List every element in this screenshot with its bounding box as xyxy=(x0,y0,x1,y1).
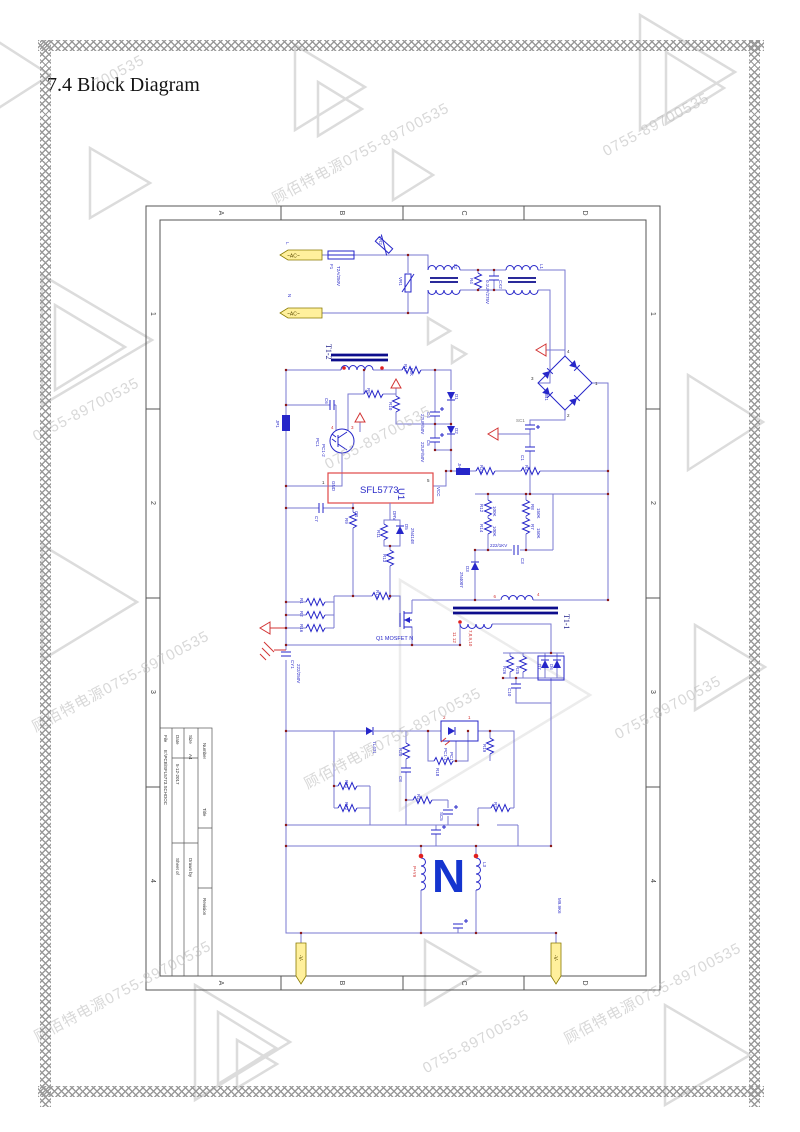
tb-revision-label: Revision xyxy=(202,898,207,916)
label-r15: R15 xyxy=(375,590,380,599)
label-cx2: CX2 xyxy=(498,280,503,289)
resistor-r8 xyxy=(523,500,530,516)
label-pin1: 1 xyxy=(322,480,325,485)
label-q1: Q1 MOSFET N xyxy=(376,636,413,642)
shunt-tl431 xyxy=(366,727,373,735)
label-r11: R11 xyxy=(376,530,381,538)
resistor-r2 xyxy=(306,612,325,619)
label-op3: 3 xyxy=(351,425,354,430)
label-r8v: 150K xyxy=(536,508,541,519)
schematic-sheet: A B C D A B C D 1 2 3 4 1 2 3 4 File E:\… xyxy=(138,198,668,1003)
label-pc1-2: PC1-2 xyxy=(321,444,326,457)
label-d6: D6 xyxy=(549,664,554,670)
cap-c1 xyxy=(525,447,535,451)
resistor-r16 xyxy=(306,625,325,632)
label-bp2: 2 xyxy=(567,413,570,418)
frame-row-3: 3 xyxy=(149,690,156,694)
resistor-r12 xyxy=(485,500,492,516)
label-sec2: 7,8,9,10 xyxy=(468,630,473,647)
frame-row-1: 1 xyxy=(149,312,156,316)
label-pc1: PC1 xyxy=(315,438,320,447)
page: { "page": {"title": "7.4 Block Diagram"}… xyxy=(0,0,800,1132)
tb-title-label: Title xyxy=(202,808,207,817)
label-c6: C6 xyxy=(324,398,329,404)
label-pc1b: PC1 xyxy=(449,752,454,761)
label-c5v: 22UF/50V xyxy=(420,442,425,462)
label-l1: L1 xyxy=(539,264,544,270)
label-r8: R8 xyxy=(530,504,535,510)
label-net1: M9.9K6 xyxy=(557,898,562,914)
tb-date-label: Date xyxy=(175,735,180,745)
label-bp3: 3 xyxy=(531,376,534,381)
label-r17v: 56K xyxy=(409,368,414,376)
label-c5: C5 xyxy=(426,440,431,446)
label-vr1: VR1 xyxy=(398,277,403,286)
label-cy1v: 222/250V xyxy=(296,664,301,683)
label-jh1: JH1 xyxy=(457,463,462,471)
label-pin5: 5 xyxy=(427,478,430,483)
frame-col-a: A xyxy=(217,211,224,216)
label-r13: R13 xyxy=(382,554,387,563)
jumper-jp1 xyxy=(282,415,290,431)
label-c8: C8 xyxy=(398,776,403,782)
diode-d3 xyxy=(471,562,479,570)
tb-size: A4 xyxy=(188,754,193,760)
diode-d5 xyxy=(396,526,404,534)
label-t1-1: T1-1 xyxy=(562,614,571,630)
label-vcc: VCC xyxy=(436,487,441,497)
polarity-marks xyxy=(440,407,444,437)
label-c7: C7 xyxy=(314,516,319,522)
frame-row-3r: 3 xyxy=(649,690,656,694)
label-op2: 2 xyxy=(443,715,446,720)
label-r9: R9 xyxy=(344,518,349,524)
label-d7: D7 xyxy=(537,664,542,670)
frame-row-1r: 1 xyxy=(649,312,656,316)
cap-c3 xyxy=(514,545,518,555)
label-cy1: CY1 xyxy=(290,660,295,669)
label-cx2v: 0.1UF/275V xyxy=(485,280,490,304)
label-r12: R12 xyxy=(479,504,484,513)
tb-sheet-label: Sheet of xyxy=(175,858,180,876)
label-tp6: 6 xyxy=(493,594,496,599)
label-sc1: SC1 xyxy=(516,418,525,423)
watermark-text: 0755-89700535 xyxy=(600,90,712,160)
cap-output-1 xyxy=(431,830,441,834)
watermark-text: 0755-89700535 xyxy=(30,375,142,445)
frame-col-c: C xyxy=(460,210,467,215)
label-r4: R4 xyxy=(469,278,474,284)
tb-number-label: Number xyxy=(202,743,207,760)
frame-col-b: B xyxy=(338,211,345,216)
label-r17: R17 xyxy=(403,364,408,373)
label-r16: R16 xyxy=(299,624,304,633)
label-r26: R26 xyxy=(502,666,507,675)
page-title: 7.4 Block Diagram xyxy=(47,74,200,97)
label-u1-name: SFL5773 xyxy=(360,485,399,496)
label-r7: R7 xyxy=(530,524,535,530)
label-d1: D1 xyxy=(454,394,459,400)
label-cs: CS xyxy=(354,511,359,517)
label-r20: R20 xyxy=(398,748,403,757)
resistor-r7 xyxy=(523,518,530,534)
label-r12v: 100K xyxy=(492,506,497,517)
label-drv: DRV xyxy=(392,511,397,520)
label-gnd: GND xyxy=(331,481,336,492)
title-block: File E:\PCB\SFL5773.SCHDOC Date 5-12-201… xyxy=(160,728,212,976)
label-ac2: ~AC~ xyxy=(287,312,300,318)
label-d3: D3 xyxy=(465,566,470,572)
label-sec1: 11 12 xyxy=(452,632,457,643)
frame-col-d: D xyxy=(581,210,588,215)
label-r1: R1 xyxy=(299,598,304,604)
polarity-marks-2 xyxy=(442,425,540,923)
label-vneg-right: -V- xyxy=(552,955,558,962)
frame-row-4: 4 xyxy=(149,879,156,883)
border-right xyxy=(749,40,760,1107)
frame-col-b2: B xyxy=(338,981,345,986)
frame-col-d2: D xyxy=(581,980,588,985)
cap-c7 xyxy=(319,503,323,513)
border-top xyxy=(38,40,764,51)
vout-connector-left xyxy=(296,943,306,984)
tb-file: E:\PCB\SFL5773.SCHDOC xyxy=(163,750,168,806)
resistor-r24 xyxy=(476,468,495,475)
label-r27: R27 xyxy=(493,802,498,811)
border-bottom xyxy=(38,1086,764,1097)
tb-file-label: File xyxy=(163,735,168,743)
cap-c6 xyxy=(330,400,334,410)
label-sc5: SC5 xyxy=(439,812,444,821)
cap-sc1 xyxy=(525,425,535,429)
tb-drawn-label: Drawn by xyxy=(188,858,193,878)
label-r24: R24 xyxy=(479,465,484,474)
label-r18: R18 xyxy=(435,768,440,777)
label-logo-n: N xyxy=(432,850,465,902)
border-left xyxy=(40,40,51,1107)
tb-size-label: Size xyxy=(188,735,193,744)
tb-date: 5-12-2017 xyxy=(175,764,180,785)
label-tl431: TL431 xyxy=(372,741,377,754)
frame-col-c2: C xyxy=(460,980,467,985)
frame-col-a2: A xyxy=(217,981,224,986)
label-jp1: JP1 xyxy=(275,420,280,428)
label-d2: D2 xyxy=(454,428,459,434)
resistor-r23 xyxy=(413,797,432,804)
components xyxy=(260,235,592,984)
resistor-r4 xyxy=(475,273,482,289)
label-bp4: 4 xyxy=(567,349,570,354)
label-r14: R14 xyxy=(479,524,484,533)
label-r2: R2 xyxy=(299,611,304,617)
label-r5: R5 xyxy=(366,388,371,394)
diode-d1 xyxy=(447,392,455,400)
varistor-vr2 xyxy=(373,235,394,256)
label-c3: C3 xyxy=(520,558,525,564)
label-r7v: 150K xyxy=(536,528,541,539)
label-t1-2: T1-2 xyxy=(324,344,333,360)
transformer-t1-2 xyxy=(331,355,388,370)
choke-l1 xyxy=(506,266,538,295)
label-r14v: 100K xyxy=(492,526,497,537)
inductor-l3 xyxy=(476,858,481,890)
label-r19: R19 xyxy=(482,744,487,753)
label-vneg-left: -V- xyxy=(297,955,303,962)
label-r22: R22 xyxy=(344,802,349,811)
inductor-output-left xyxy=(421,858,426,890)
label-pc1-1: PC1-1 xyxy=(443,748,448,761)
label-u1: U1 xyxy=(395,488,406,500)
fuse-f1 xyxy=(328,251,354,259)
label-r3: R3 xyxy=(524,465,529,471)
label-d5: D5 xyxy=(404,524,409,530)
resistor-r15 xyxy=(372,593,391,600)
label-tp4: 4 xyxy=(537,592,540,597)
label-r23: R23 xyxy=(416,794,421,803)
label-r10: R10 xyxy=(388,402,393,411)
label-f1: F1 xyxy=(329,264,334,270)
watermark-text: 顾佰特电源0755-89700535 xyxy=(268,97,453,209)
watermark-text: 0755-89700535 xyxy=(420,1007,532,1077)
vout-connector-right xyxy=(551,943,561,984)
label-db1: DB1 xyxy=(544,392,549,401)
label-r21: R21 xyxy=(344,780,349,789)
frame-row-2: 2 xyxy=(149,501,156,505)
label-op1: 1 xyxy=(468,715,471,720)
cap-c8 xyxy=(401,768,411,772)
label-l2: L2 xyxy=(453,264,458,270)
label-neutral: N xyxy=(287,294,292,297)
optocoupler-pc1-1 xyxy=(441,721,478,745)
cap-output-2 xyxy=(453,924,463,928)
label-f1v: T2A/250V xyxy=(336,266,341,286)
label-c4: C4 xyxy=(426,412,431,418)
label-c3v: 222/1KV xyxy=(490,543,507,548)
label-ac1: ~AC~ xyxy=(287,254,300,260)
frame-row-4r: 4 xyxy=(649,879,656,883)
frame-row-2r: 2 xyxy=(649,501,656,505)
diode-d2 xyxy=(447,426,455,434)
label-l3: L3 xyxy=(482,862,487,868)
label-c4v: 22UF/50V xyxy=(420,414,425,434)
label-line: L xyxy=(285,242,290,245)
resistor-r14 xyxy=(485,518,492,534)
label-op4: 4 xyxy=(331,425,334,430)
label-c1: C1 xyxy=(520,455,525,461)
label-c10: C10 xyxy=(507,688,512,697)
wires xyxy=(286,255,608,943)
label-d5v: 2N4148 xyxy=(410,528,415,544)
label-r25: R25 xyxy=(515,666,520,675)
label-d3v: 2N4007 xyxy=(459,572,464,588)
resistor-r1 xyxy=(306,599,325,606)
mosfet-q1 xyxy=(400,611,412,629)
label-py9: P+Y9 xyxy=(412,866,417,878)
choke-l2 xyxy=(428,266,460,295)
cap-cy1 xyxy=(281,652,291,656)
optocoupler-pc1-2 xyxy=(330,429,354,453)
sheet-frame: A B C D A B C D 1 2 3 4 1 2 3 4 xyxy=(146,206,660,990)
label-vr2: VR2 xyxy=(378,236,383,245)
